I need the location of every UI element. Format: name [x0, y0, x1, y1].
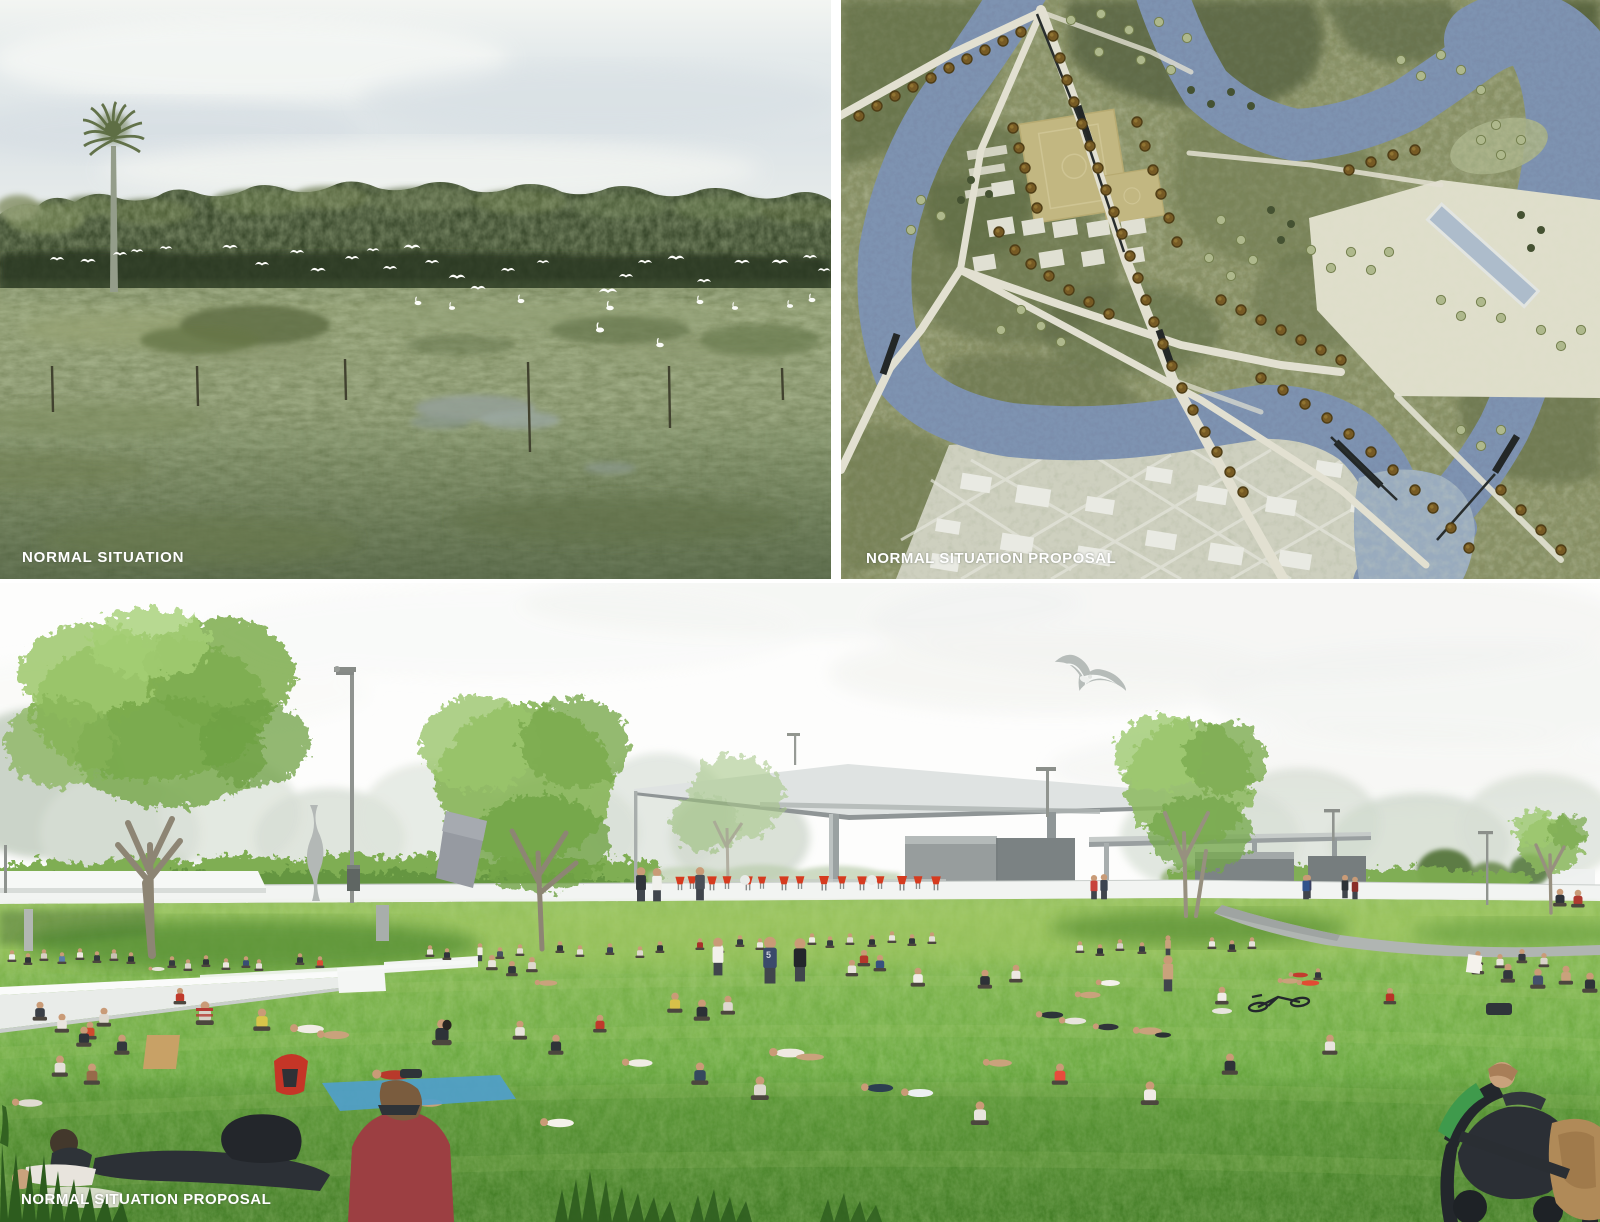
svg-text:5: 5: [766, 950, 771, 960]
